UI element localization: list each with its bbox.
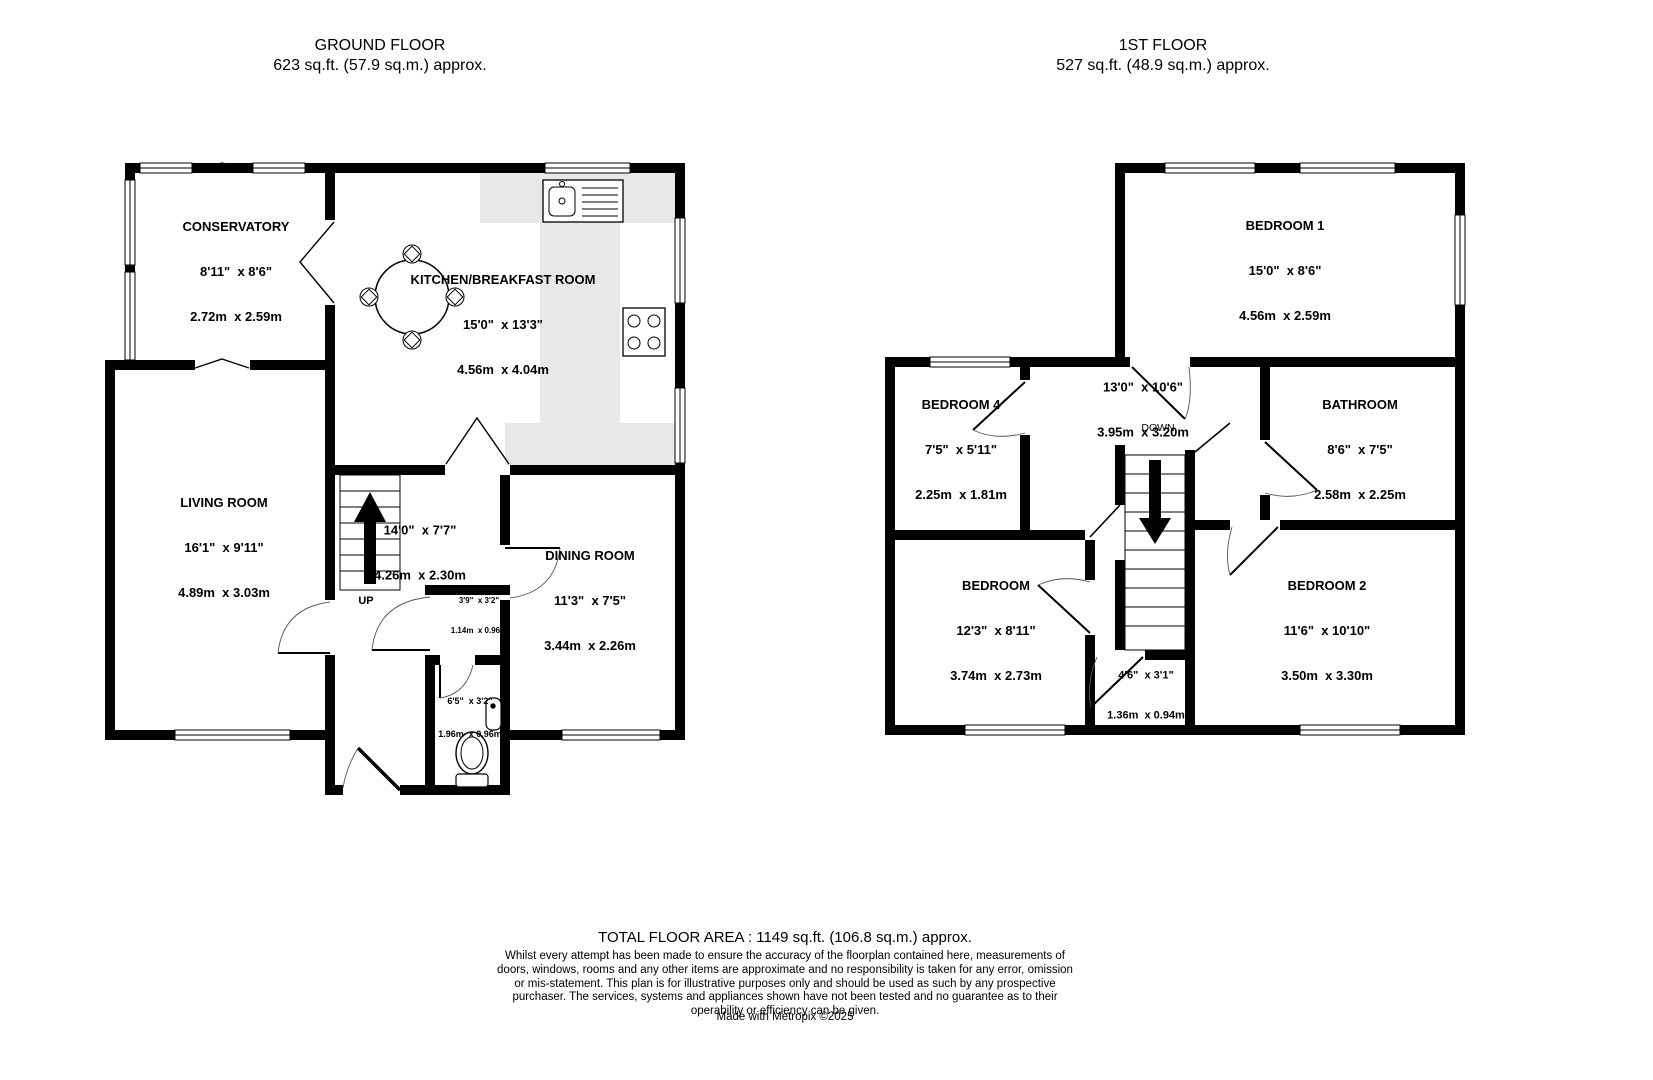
kitchen-hall-double-door [446, 418, 509, 464]
room-label-cupboard: 3'9" x 3'2" 1.14m x 0.96m [451, 576, 507, 656]
window [965, 725, 1065, 735]
window [175, 730, 290, 740]
room-label-bedroom1: BEDROOM 1 15'0" x 8'6" 4.56m x 2.59m [1239, 189, 1331, 353]
room-label-conservatory: CONSERVATORY 8'11" x 8'6" 2.72m x 2.59m [183, 190, 290, 354]
room-label-bedroom2: BEDROOM 2 11'6" x 10'10" 3.50m x 3.30m [1281, 549, 1373, 713]
window [545, 163, 630, 173]
window [675, 388, 685, 463]
ground-floor-area: 623 sq.ft. (57.9 sq.m.) approx. [273, 56, 486, 76]
disclaimer-text: Whilst every attempt has been made to en… [492, 950, 1078, 1019]
window [1455, 215, 1465, 305]
up-label: UP [358, 595, 373, 607]
window [1165, 163, 1255, 173]
window [140, 163, 192, 173]
door-swing-living [278, 602, 330, 653]
first-floor-header: 1ST FLOOR 527 sq.ft. (48.9 sq.m.) approx… [1056, 36, 1269, 76]
window [1300, 163, 1395, 173]
floorplan-page: GROUND FLOOR 623 sq.ft. (57.9 sq.m.) app… [0, 0, 1653, 1080]
window [1300, 725, 1400, 735]
room-label-kitchen: KITCHEN/BREAKFAST ROOM 15'0" x 13'3" 4.5… [411, 243, 596, 407]
ground-floor-title: GROUND FLOOR [273, 36, 486, 56]
room-label-bathroom: BATHROOM 8'6" x 7'5" 2.58m x 2.25m [1314, 368, 1406, 532]
first-floor-title: 1ST FLOOR [1056, 36, 1269, 56]
conservatory-kitchen-opening [300, 222, 334, 303]
window [675, 218, 685, 303]
door-swing-bedroom2 [1227, 527, 1278, 575]
window [125, 180, 135, 265]
first-floor-area: 527 sq.ft. (48.9 sq.m.) approx. [1056, 56, 1269, 76]
down-label: DOWN [1141, 422, 1174, 434]
window [253, 163, 305, 173]
door-swing-bathroom [1265, 442, 1317, 496]
room-label-bedroom: BEDROOM 12'3" x 8'11" 3.74m x 2.73m [950, 549, 1042, 713]
hob-icon [623, 308, 665, 356]
room-label-store: 4'6" x 3'1" 1.36m x 0.94m [1107, 643, 1185, 749]
room-label-landing: 13'0" x 10'6" 3.95m x 3.20m [1097, 350, 1189, 470]
room-label-wc: 6'5" x 3'2" 1.96m x 0.96m [438, 673, 502, 763]
total-floor-area: TOTAL FLOOR AREA : 1149 sq.ft. (106.8 sq… [598, 929, 972, 946]
door-swing-bedroom [1038, 579, 1090, 633]
stairs-down-icon [1125, 455, 1185, 650]
front-door [343, 748, 400, 790]
sink-icon [543, 180, 623, 222]
window [125, 272, 135, 360]
room-label-living: LIVING ROOM 16'1" x 9'11" 4.89m x 3.03m [178, 466, 270, 630]
credit-line: Made with Metropix ©2025 [717, 1011, 854, 1023]
window [930, 357, 1010, 367]
ground-floor-header: GROUND FLOOR 623 sq.ft. (57.9 sq.m.) app… [273, 36, 486, 76]
room-label-bedroom4: BEDROOM 4 7'5" x 5'11" 2.25m x 1.81m [915, 368, 1007, 532]
room-label-dining: DINING ROOM 11'3" x 7'5" 3.44m x 2.26m [544, 519, 636, 683]
window [562, 730, 660, 740]
